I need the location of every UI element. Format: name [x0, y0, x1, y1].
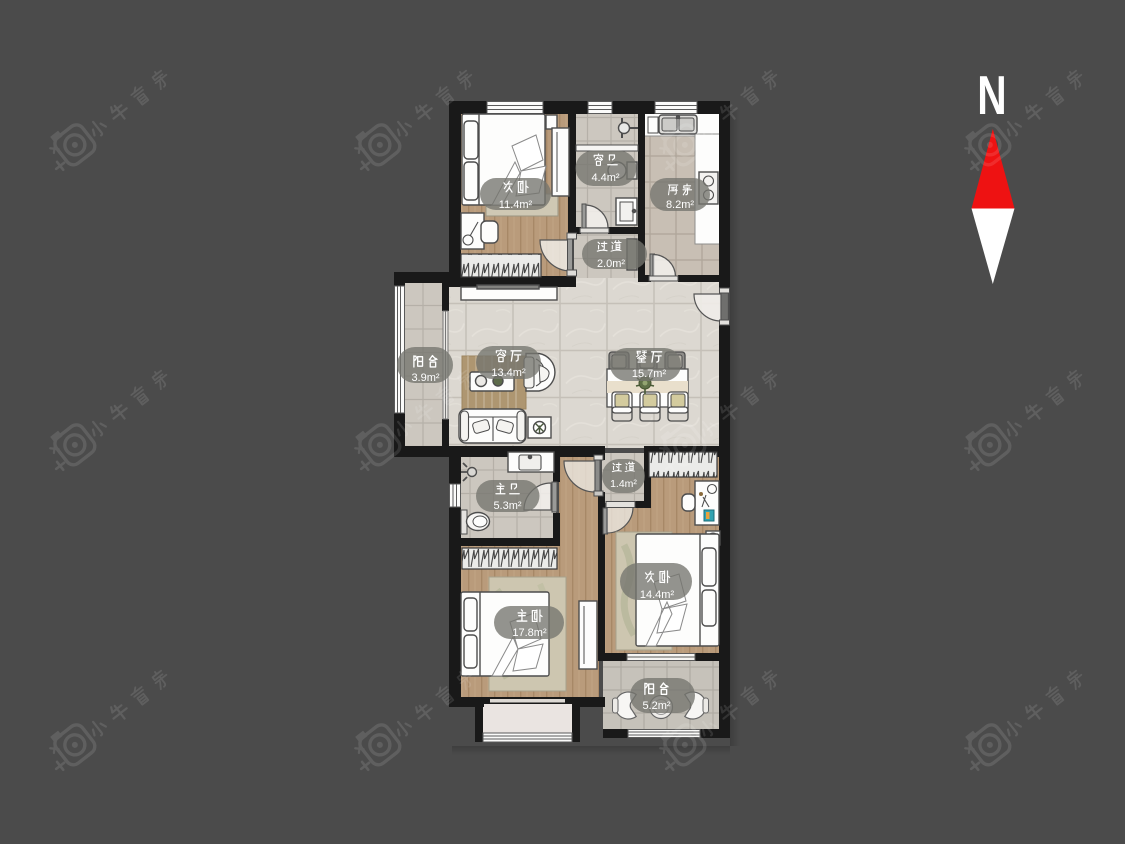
svg-text:1.4m²: 1.4m²	[610, 478, 637, 490]
svg-text:17.8m²: 17.8m²	[512, 627, 547, 639]
svg-text:4.4m²: 4.4m²	[591, 172, 619, 184]
svg-text:15.7m²: 15.7m²	[632, 368, 667, 380]
svg-text:N: N	[977, 65, 1006, 126]
svg-text:11.4m²: 11.4m²	[499, 199, 533, 211]
svg-text:3.9m²: 3.9m²	[411, 372, 439, 384]
svg-text:13.4m²: 13.4m²	[491, 367, 526, 379]
svg-text:5.2m²: 5.2m²	[642, 700, 670, 712]
svg-text:5.3m²: 5.3m²	[493, 500, 521, 512]
svg-text:8.2m²: 8.2m²	[666, 199, 694, 211]
svg-text:2.0m²: 2.0m²	[597, 258, 625, 270]
svg-text:14.4m²: 14.4m²	[640, 589, 675, 601]
